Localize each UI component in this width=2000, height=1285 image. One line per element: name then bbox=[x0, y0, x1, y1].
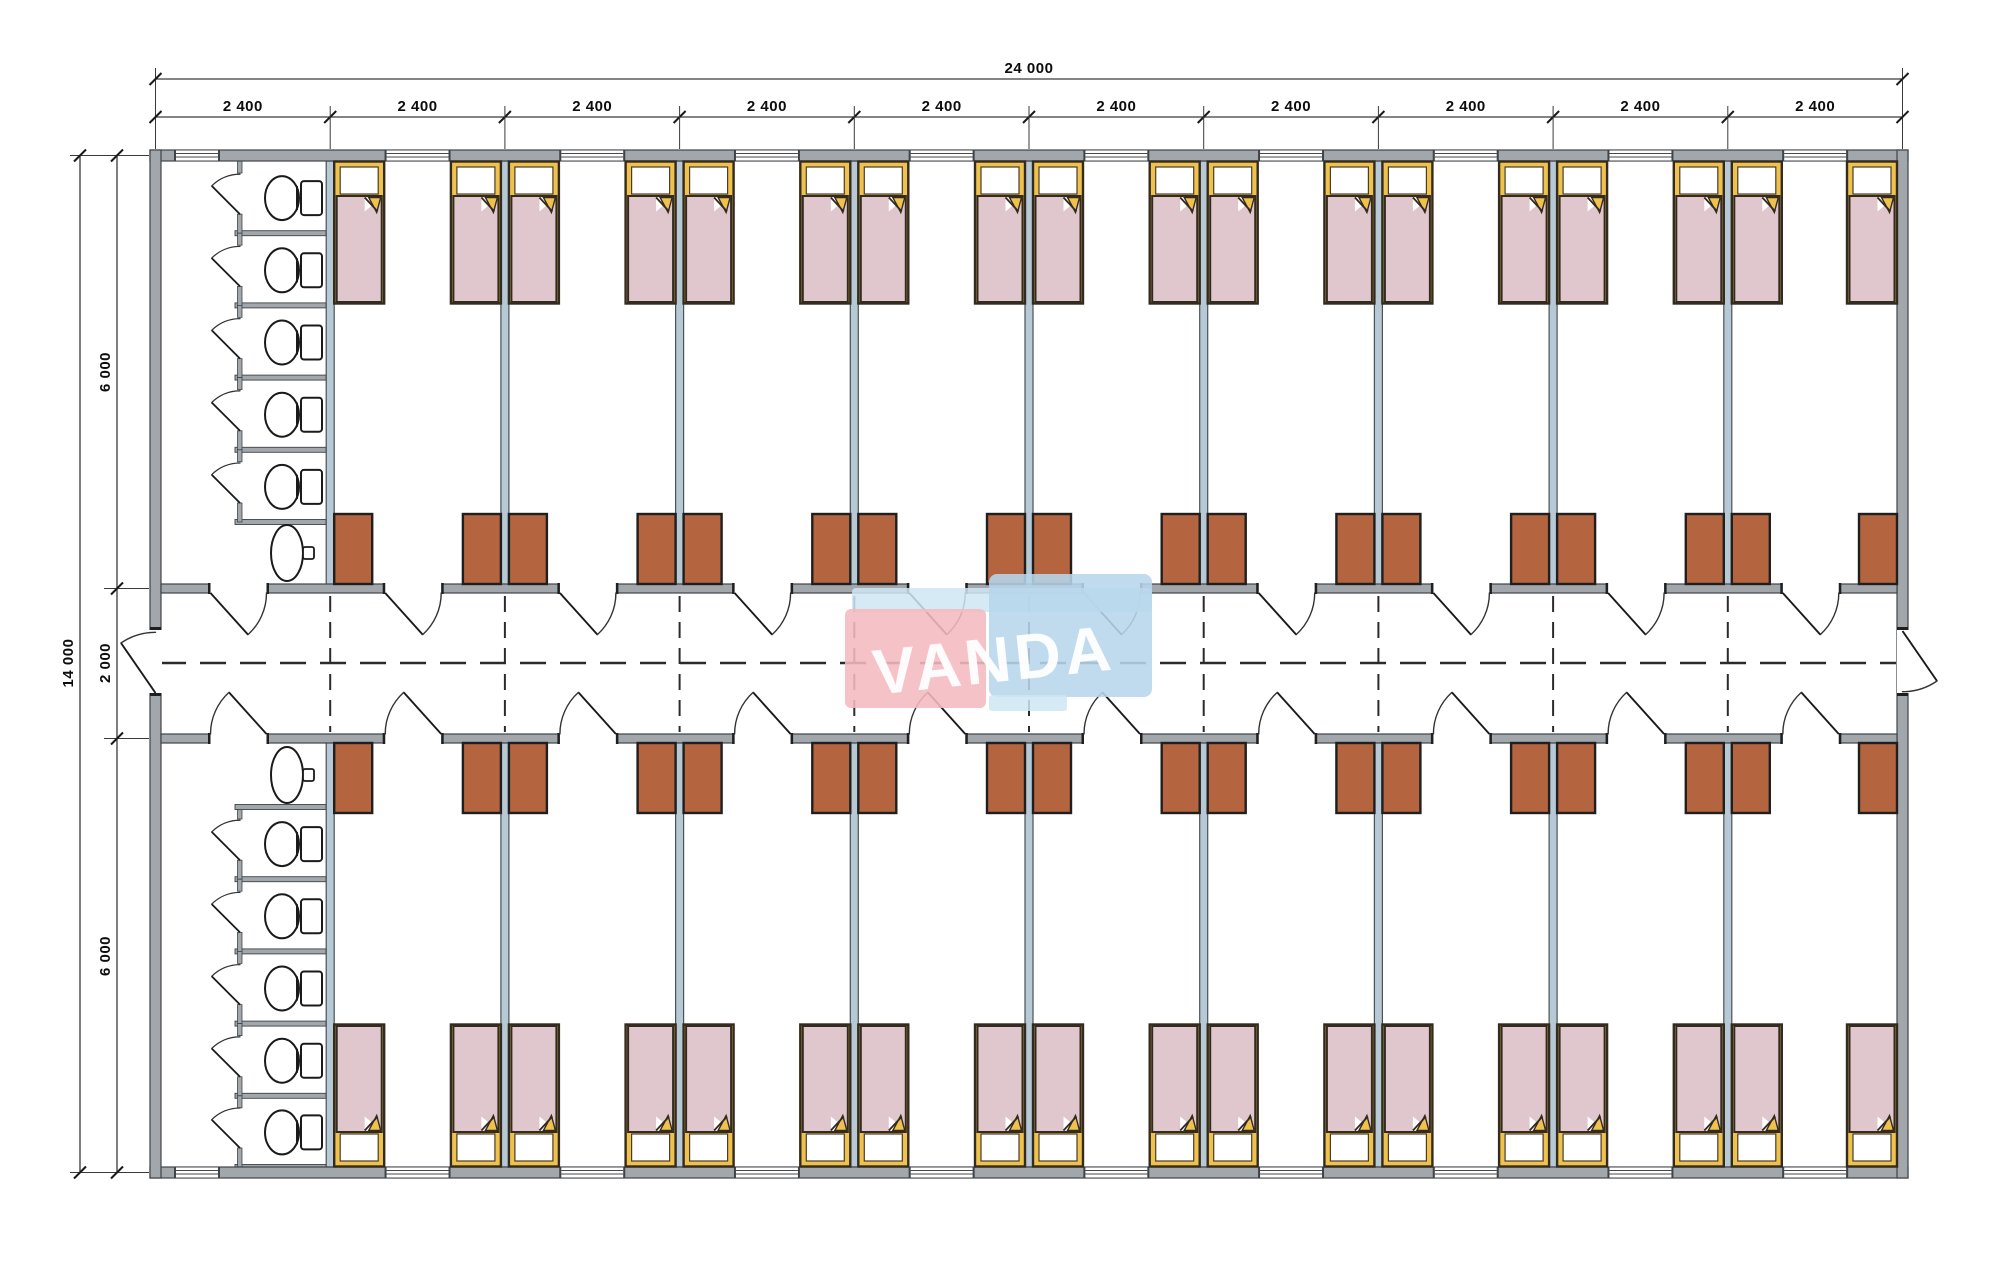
wardrobe bbox=[1208, 743, 1246, 813]
dimension-label-bay-width: 2 400 bbox=[1446, 98, 1486, 115]
wardrobe bbox=[1686, 743, 1724, 813]
bed-blanket bbox=[628, 196, 673, 302]
stall-divider-wall bbox=[235, 520, 326, 525]
bed-blanket bbox=[337, 196, 382, 302]
stall-door-leaf bbox=[212, 976, 240, 1004]
toilet-tank bbox=[301, 398, 322, 432]
window-jamb bbox=[1782, 1168, 1784, 1178]
door-jamb-cap bbox=[1780, 733, 1783, 744]
stall-divider-wall bbox=[235, 1093, 326, 1098]
door-jamb-cap bbox=[267, 583, 270, 594]
bed-pillow bbox=[457, 1134, 495, 1161]
room-door-leaf bbox=[1259, 593, 1297, 635]
bed-pillow bbox=[864, 1134, 902, 1161]
window-jamb bbox=[1322, 1168, 1324, 1178]
window-jamb bbox=[1433, 1168, 1435, 1178]
window-jamb bbox=[218, 1168, 220, 1178]
stall-front-wall bbox=[238, 1096, 243, 1108]
bed-pillow bbox=[632, 1134, 670, 1161]
toilet-tank bbox=[301, 827, 322, 861]
wardrobe bbox=[1859, 514, 1897, 584]
door-jamb-cap bbox=[791, 733, 794, 744]
wardrobe bbox=[1732, 514, 1770, 584]
room-door-swing-arc bbox=[735, 692, 754, 734]
wardrobe bbox=[1382, 514, 1420, 584]
stall-front-wall bbox=[238, 214, 243, 233]
window-jamb bbox=[1607, 1168, 1609, 1178]
stall-front-wall bbox=[238, 286, 243, 305]
window-opening bbox=[736, 1168, 798, 1178]
door-jamb-cap bbox=[1780, 583, 1783, 594]
window-jamb bbox=[1671, 1168, 1673, 1178]
door-jamb-cap bbox=[1315, 583, 1318, 594]
wardrobe bbox=[1336, 514, 1374, 584]
room-door-swing-arc bbox=[423, 593, 442, 635]
window-jamb bbox=[174, 151, 176, 161]
bed-blanket bbox=[1560, 1026, 1605, 1132]
room-door-swing-arc bbox=[1608, 692, 1627, 734]
bed-blanket bbox=[1210, 1026, 1255, 1132]
window-opening bbox=[1085, 151, 1147, 161]
stall-door-leaf bbox=[212, 330, 240, 358]
door-jamb-cap bbox=[616, 583, 619, 594]
door-opening bbox=[385, 583, 441, 595]
wardrobe bbox=[1732, 743, 1770, 813]
room-door-leaf bbox=[1627, 692, 1665, 734]
window-jamb bbox=[973, 151, 975, 161]
bed-pillow bbox=[1738, 1134, 1776, 1161]
dimension-label-bay-width: 2 400 bbox=[1271, 98, 1311, 115]
bed-pillow bbox=[1156, 167, 1194, 194]
wardrobe bbox=[858, 743, 896, 813]
room-door-swing-arc bbox=[1084, 692, 1103, 734]
bed-blanket bbox=[1385, 1026, 1430, 1132]
bed-blanket bbox=[511, 196, 556, 302]
door-opening bbox=[735, 583, 791, 595]
stall-divider-wall bbox=[235, 231, 326, 236]
window-opening bbox=[1784, 151, 1846, 161]
stall-door-leaf bbox=[212, 1120, 240, 1148]
wardrobe bbox=[1859, 743, 1897, 813]
toilet-bowl bbox=[265, 465, 299, 509]
window-jamb bbox=[909, 151, 911, 161]
sink-tap bbox=[303, 769, 314, 781]
dimension-label-band-height: 6 000 bbox=[97, 352, 114, 392]
stall-door-leaf bbox=[212, 186, 240, 214]
stall-door-swing-arc bbox=[212, 1108, 240, 1120]
toilet-tank bbox=[301, 972, 322, 1006]
wardrobe bbox=[684, 743, 722, 813]
door-jamb-cap bbox=[383, 733, 386, 744]
bed-pillow bbox=[1330, 1134, 1368, 1161]
window-jamb bbox=[973, 1168, 975, 1178]
window-opening bbox=[176, 151, 218, 161]
door-jamb-cap bbox=[616, 733, 619, 744]
stall-divider-wall bbox=[235, 949, 326, 954]
room-door-swing-arc bbox=[1471, 593, 1490, 635]
window-jamb bbox=[623, 151, 625, 161]
room-door-leaf bbox=[1608, 593, 1646, 635]
window-jamb bbox=[449, 151, 451, 161]
dimension-label-bay-width: 2 400 bbox=[1795, 98, 1835, 115]
stall-front-wall bbox=[238, 951, 243, 963]
window-opening bbox=[1784, 1168, 1846, 1178]
window-jamb bbox=[1782, 151, 1784, 161]
partition-wall bbox=[676, 738, 684, 1167]
stall-door-leaf bbox=[212, 403, 240, 431]
door-jamb-cap bbox=[557, 733, 560, 744]
window-jamb bbox=[1846, 151, 1848, 161]
door-jamb-cap bbox=[383, 583, 386, 594]
room-door-swing-arc bbox=[560, 692, 579, 734]
bed-blanket bbox=[1676, 196, 1721, 302]
window-jamb bbox=[1083, 151, 1085, 161]
stall-door-swing-arc bbox=[212, 892, 240, 904]
door-opening bbox=[149, 630, 162, 693]
room-door-leaf bbox=[1452, 692, 1490, 734]
window-opening bbox=[387, 151, 449, 161]
window-opening bbox=[1435, 1168, 1497, 1178]
sink-basin bbox=[271, 747, 303, 803]
partition-wall bbox=[850, 738, 858, 1167]
door-opening bbox=[211, 583, 267, 595]
room-door-leaf bbox=[1783, 593, 1821, 635]
bed-blanket bbox=[1734, 1026, 1779, 1132]
stall-front-wall bbox=[238, 1148, 243, 1167]
door-opening bbox=[1608, 583, 1664, 595]
bed-pillow bbox=[864, 167, 902, 194]
room-door-swing-arc bbox=[1820, 593, 1839, 635]
door-jamb-cap bbox=[441, 583, 444, 594]
wardrobe bbox=[1208, 514, 1246, 584]
window-jamb bbox=[1322, 151, 1324, 161]
window-opening bbox=[1435, 151, 1497, 161]
toilet-tank bbox=[301, 253, 322, 287]
stall-door-leaf bbox=[212, 832, 240, 860]
window-jamb bbox=[1497, 1168, 1499, 1178]
window-opening bbox=[561, 151, 623, 161]
partition-wall bbox=[501, 161, 509, 589]
room-door-leaf bbox=[404, 692, 442, 734]
dimension-label-bay-width: 2 400 bbox=[747, 98, 787, 115]
window-jamb bbox=[218, 151, 220, 161]
window-jamb bbox=[798, 1168, 800, 1178]
room-door-swing-arc bbox=[248, 593, 267, 635]
dimension-label-bay-width: 2 400 bbox=[1620, 98, 1660, 115]
bed-pillow bbox=[806, 1134, 844, 1161]
bed-pillow bbox=[1563, 1134, 1601, 1161]
door-opening bbox=[211, 733, 267, 745]
stall-front-wall bbox=[238, 450, 243, 462]
wardrobe bbox=[1033, 743, 1071, 813]
window-jamb bbox=[559, 151, 561, 161]
stall-divider-wall bbox=[235, 805, 326, 810]
window-jamb bbox=[1671, 151, 1673, 161]
room-door-leaf bbox=[385, 593, 423, 635]
stall-door-swing-arc bbox=[212, 1037, 240, 1049]
dimension-label-overall-height: 14 000 bbox=[60, 639, 77, 688]
door-jamb-cap bbox=[1839, 733, 1842, 744]
window-jamb bbox=[1497, 151, 1499, 161]
partition-wall bbox=[676, 161, 684, 589]
room-door-swing-arc bbox=[1259, 692, 1278, 734]
window-opening bbox=[561, 1168, 623, 1178]
door-opening bbox=[385, 733, 441, 745]
stall-front-wall bbox=[238, 431, 243, 450]
toilet-bowl bbox=[265, 248, 299, 292]
door-jamb-cap bbox=[732, 733, 735, 744]
door-jamb-cap bbox=[1839, 583, 1842, 594]
partition-wall bbox=[501, 738, 509, 1167]
window-jamb bbox=[559, 1168, 561, 1178]
door-jamb-cap bbox=[1489, 733, 1492, 744]
door-jamb-cap bbox=[267, 733, 270, 744]
bed-blanket bbox=[628, 1026, 673, 1132]
wardrobe bbox=[1033, 514, 1071, 584]
stall-front-wall bbox=[238, 1024, 243, 1036]
room-door-swing-arc bbox=[211, 692, 230, 734]
window-jamb bbox=[1147, 1168, 1149, 1178]
wardrobe bbox=[684, 514, 722, 584]
dimension-label-bay-width: 2 400 bbox=[572, 98, 612, 115]
stall-door-swing-arc bbox=[212, 319, 240, 331]
door-jamb-cap bbox=[1082, 733, 1085, 744]
bed-pillow bbox=[515, 167, 553, 194]
stall-door-swing-arc bbox=[212, 391, 240, 403]
sink-tap bbox=[303, 547, 314, 559]
toilet-tank bbox=[301, 181, 322, 215]
stall-divider-wall bbox=[235, 447, 326, 452]
bed-pillow bbox=[1680, 1134, 1718, 1161]
room-door-swing-arc bbox=[1646, 593, 1665, 635]
stall-front-wall bbox=[238, 305, 243, 317]
watermark-block-lightblue bbox=[989, 695, 1067, 711]
room-door-leaf bbox=[753, 692, 791, 734]
floor-plan: 24 0002 4002 4002 4002 4002 4002 4002 40… bbox=[0, 0, 2000, 1285]
bed-blanket bbox=[453, 1026, 498, 1132]
door-jamb-cap bbox=[1431, 583, 1434, 594]
window-jamb bbox=[449, 1168, 451, 1178]
window-jamb bbox=[798, 151, 800, 161]
window-opening bbox=[1609, 1168, 1671, 1178]
wardrobe bbox=[334, 743, 372, 813]
wardrobe bbox=[463, 514, 501, 584]
bed-pillow bbox=[1330, 167, 1368, 194]
bed-blanket bbox=[1385, 196, 1430, 302]
stall-door-swing-arc bbox=[212, 820, 240, 832]
room-door-leaf bbox=[560, 593, 598, 635]
floor-plan-canvas: 24 0002 4002 4002 4002 4002 4002 4002 40… bbox=[0, 0, 2000, 1285]
window-jamb bbox=[1258, 1168, 1260, 1178]
wardrobe bbox=[638, 514, 676, 584]
room-door-leaf bbox=[1103, 692, 1141, 734]
stall-front-wall bbox=[238, 1005, 243, 1024]
dimension-label-bay-width: 2 400 bbox=[223, 98, 263, 115]
wardrobe bbox=[1162, 743, 1200, 813]
bed-pillow bbox=[1388, 1134, 1426, 1161]
window-jamb bbox=[1083, 1168, 1085, 1178]
room-door-leaf bbox=[211, 593, 249, 635]
door-opening bbox=[560, 583, 616, 595]
wardrobe bbox=[1686, 514, 1724, 584]
stall-front-wall bbox=[238, 359, 243, 378]
door-opening bbox=[1084, 733, 1140, 745]
wardrobe bbox=[1382, 743, 1420, 813]
room-door-swing-arc bbox=[1296, 593, 1315, 635]
bed-pillow bbox=[632, 167, 670, 194]
stall-front-wall bbox=[238, 1077, 243, 1096]
bed-blanket bbox=[1560, 196, 1605, 302]
window-jamb bbox=[1147, 151, 1149, 161]
door-opening bbox=[1608, 733, 1664, 745]
door-jamb-cap bbox=[1140, 733, 1143, 744]
bed-blanket bbox=[1850, 196, 1895, 302]
dimension-label-bay-width: 2 400 bbox=[398, 98, 438, 115]
room-door-swing-arc bbox=[1433, 692, 1452, 734]
bed-pillow bbox=[1505, 1134, 1543, 1161]
bed-blanket bbox=[686, 1026, 731, 1132]
wardrobe bbox=[638, 743, 676, 813]
window-jamb bbox=[174, 1168, 176, 1178]
bed-blanket bbox=[1676, 1026, 1721, 1132]
bed-pillow bbox=[690, 167, 728, 194]
bed-pillow bbox=[690, 1134, 728, 1161]
window-jamb bbox=[1846, 1168, 1848, 1178]
toilet-tank bbox=[301, 470, 322, 504]
bed-blanket bbox=[1036, 196, 1081, 302]
bed-blanket bbox=[1502, 196, 1547, 302]
stall-divider-wall bbox=[235, 877, 326, 882]
dimension-label-bay-width: 2 400 bbox=[1096, 98, 1136, 115]
stall-front-wall bbox=[238, 932, 243, 951]
toilet-bowl bbox=[265, 176, 299, 220]
sink-basin bbox=[271, 525, 303, 581]
stall-front-wall bbox=[238, 378, 243, 390]
door-jamb-cap bbox=[1606, 733, 1609, 744]
bed-pillow bbox=[981, 167, 1019, 194]
toilet-bowl bbox=[265, 1110, 299, 1154]
bed-pillow bbox=[1563, 167, 1601, 194]
dimension-label-corridor-width: 2 000 bbox=[97, 643, 114, 683]
bed-pillow bbox=[457, 167, 495, 194]
wardrobe bbox=[509, 514, 547, 584]
bed-blanket bbox=[861, 1026, 906, 1132]
window-jamb bbox=[909, 1168, 911, 1178]
window-jamb bbox=[1607, 151, 1609, 161]
door-opening bbox=[1259, 583, 1315, 595]
door-jamb-cap bbox=[1256, 733, 1259, 744]
door-opening bbox=[909, 733, 965, 745]
door-jamb-cap bbox=[150, 627, 161, 630]
door-jamb-cap bbox=[1664, 583, 1667, 594]
door-opening bbox=[735, 733, 791, 745]
stall-door-swing-arc bbox=[212, 965, 240, 977]
wardrobe bbox=[812, 514, 850, 584]
bed-pillow bbox=[1214, 1134, 1252, 1161]
door-jamb-cap bbox=[907, 733, 910, 744]
bed-blanket bbox=[686, 196, 731, 302]
bed-blanket bbox=[1036, 1026, 1081, 1132]
window-jamb bbox=[734, 1168, 736, 1178]
stall-divider-wall bbox=[235, 303, 326, 308]
wardrobe bbox=[987, 514, 1025, 584]
toilet-bowl bbox=[265, 967, 299, 1011]
room-door-swing-arc bbox=[1783, 692, 1802, 734]
window-jamb bbox=[1258, 151, 1260, 161]
door-opening bbox=[1433, 733, 1489, 745]
room-door-leaf bbox=[1801, 692, 1839, 734]
room-door-leaf bbox=[735, 593, 773, 635]
bed-pillow bbox=[1214, 167, 1252, 194]
dimension-label-bay-width: 2 400 bbox=[922, 98, 962, 115]
toilet-tank bbox=[301, 899, 322, 933]
room-door-leaf bbox=[1433, 593, 1471, 635]
window-opening bbox=[1085, 1168, 1147, 1178]
bed-blanket bbox=[1850, 1026, 1895, 1132]
door-jamb-cap bbox=[150, 693, 161, 696]
window-opening bbox=[176, 1168, 218, 1178]
bed-pillow bbox=[340, 1134, 378, 1161]
door-opening bbox=[1259, 733, 1315, 745]
door-jamb-cap bbox=[1606, 583, 1609, 594]
bed-pillow bbox=[1853, 167, 1891, 194]
bed-blanket bbox=[1327, 196, 1372, 302]
stall-door-leaf bbox=[212, 258, 240, 286]
bed-blanket bbox=[1152, 1026, 1197, 1132]
wardrobe bbox=[1557, 743, 1595, 813]
door-jamb-cap bbox=[1256, 583, 1259, 594]
toilet-bowl bbox=[265, 393, 299, 437]
window-opening bbox=[1260, 1168, 1322, 1178]
window-opening bbox=[911, 151, 973, 161]
stall-front-wall bbox=[238, 161, 243, 173]
stall-door-swing-arc bbox=[212, 246, 240, 258]
bed-pillow bbox=[515, 1134, 553, 1161]
bed-blanket bbox=[1152, 196, 1197, 302]
window-opening bbox=[911, 1168, 973, 1178]
wardrobe bbox=[463, 743, 501, 813]
stall-front-wall bbox=[238, 233, 243, 245]
bed-blanket bbox=[978, 196, 1023, 302]
door-jamb-cap bbox=[1897, 693, 1908, 696]
toilet-tank bbox=[301, 326, 322, 360]
door-jamb-cap bbox=[732, 583, 735, 594]
wardrobe bbox=[1336, 743, 1374, 813]
bed-pillow bbox=[1039, 167, 1077, 194]
stall-door-leaf bbox=[212, 904, 240, 932]
door-jamb-cap bbox=[208, 733, 211, 744]
room-door-leaf bbox=[578, 692, 616, 734]
bed-blanket bbox=[803, 1026, 848, 1132]
door-jamb-cap bbox=[208, 583, 211, 594]
window-opening bbox=[1609, 151, 1671, 161]
door-jamb-cap bbox=[1664, 733, 1667, 744]
bed-pillow bbox=[1156, 1134, 1194, 1161]
window-jamb bbox=[623, 1168, 625, 1178]
stall-front-wall bbox=[238, 503, 243, 522]
bed-pillow bbox=[1388, 167, 1426, 194]
door-jamb-cap bbox=[1897, 627, 1908, 630]
stall-divider-wall bbox=[235, 375, 326, 380]
stall-door-swing-arc bbox=[212, 463, 240, 475]
bed-pillow bbox=[1738, 167, 1776, 194]
room-door-swing-arc bbox=[597, 593, 616, 635]
door-opening bbox=[1783, 733, 1839, 745]
toilet-bowl bbox=[265, 1039, 299, 1083]
partition-wall bbox=[326, 738, 334, 1167]
stall-front-wall bbox=[238, 879, 243, 891]
door-jamb-cap bbox=[965, 733, 968, 744]
